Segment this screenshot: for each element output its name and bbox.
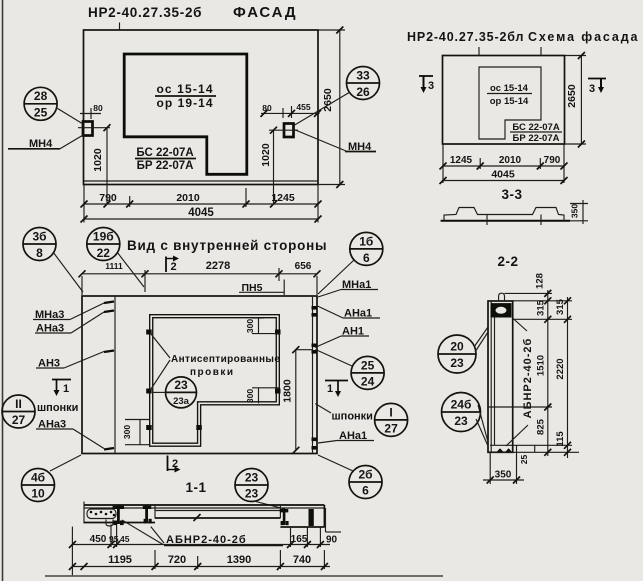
svg-text:25: 25 — [361, 359, 375, 373]
svg-text:300: 300 — [245, 319, 255, 333]
svg-text:ор 15-14: ор 15-14 — [490, 96, 529, 107]
svg-text:23: 23 — [174, 378, 188, 392]
svg-text:провки: провки — [190, 367, 235, 378]
svg-text:20: 20 — [450, 340, 464, 354]
svg-text:Антисептированные: Антисептированные — [171, 354, 280, 365]
svg-text:4045: 4045 — [491, 169, 515, 181]
svg-text:2: 2 — [172, 458, 178, 470]
svg-text:315: 315 — [555, 298, 566, 315]
svg-text:1-1: 1-1 — [185, 480, 206, 495]
svg-text:25: 25 — [34, 106, 48, 120]
svg-text:115: 115 — [555, 431, 566, 447]
svg-text:1: 1 — [63, 383, 69, 395]
svg-text:23а: 23а — [173, 396, 190, 407]
svg-text:656: 656 — [295, 261, 312, 272]
svg-text:1111: 1111 — [105, 261, 123, 271]
svg-text:26: 26 — [356, 85, 370, 99]
svg-text:2278: 2278 — [206, 260, 230, 272]
svg-text:19б: 19б — [93, 230, 114, 244]
svg-text:3: 3 — [589, 83, 595, 95]
svg-text:Вид с внутренней стороны: Вид с внутренней стороны — [127, 238, 327, 253]
svg-text:6: 6 — [363, 251, 370, 265]
svg-text:25: 25 — [519, 455, 529, 465]
svg-text:II: II — [15, 397, 22, 411]
svg-text:1800: 1800 — [282, 379, 294, 403]
svg-text:2: 2 — [171, 261, 177, 273]
svg-text:1245: 1245 — [450, 155, 473, 166]
svg-text:1020: 1020 — [260, 143, 272, 167]
svg-text:АБНР2-40-2б: АБНР2-40-2б — [522, 338, 534, 419]
svg-text:3б: 3б — [32, 230, 46, 244]
svg-text:2220: 2220 — [555, 358, 566, 379]
svg-text:шпонки: шпонки — [332, 411, 373, 423]
svg-text:2010: 2010 — [176, 192, 200, 204]
svg-text:НР2-40.27.35-2бл: НР2-40.27.35-2бл — [407, 30, 524, 44]
svg-text:1: 1 — [327, 383, 333, 395]
svg-text:450: 450 — [90, 534, 107, 545]
svg-text:1390: 1390 — [227, 554, 251, 566]
svg-text:6: 6 — [362, 484, 369, 498]
svg-text:23: 23 — [450, 356, 464, 370]
svg-text:БР 22-07А: БР 22-07А — [137, 160, 194, 172]
svg-text:740: 740 — [293, 554, 311, 566]
svg-text:24б: 24б — [451, 398, 472, 412]
svg-text:1245: 1245 — [271, 192, 295, 204]
svg-text:1195: 1195 — [108, 554, 132, 566]
svg-text:24: 24 — [361, 375, 375, 389]
svg-text:90: 90 — [326, 535, 338, 546]
svg-text:4045: 4045 — [188, 207, 214, 219]
svg-text:ос 15-14: ос 15-14 — [157, 82, 213, 96]
svg-text:2650: 2650 — [566, 84, 578, 108]
svg-text:2б: 2б — [358, 468, 372, 482]
svg-text:455: 455 — [296, 102, 310, 112]
svg-text:ФАСАД: ФАСАД — [233, 4, 296, 21]
svg-text:790: 790 — [544, 155, 561, 166]
svg-text:БС 22-07А: БС 22-07А — [512, 122, 560, 133]
svg-text:28: 28 — [34, 89, 48, 103]
svg-text:300: 300 — [122, 425, 132, 439]
svg-text:350: 350 — [495, 470, 512, 481]
svg-text:315: 315 — [536, 299, 547, 316]
svg-text:80: 80 — [262, 103, 272, 113]
svg-text:4б: 4б — [31, 471, 45, 485]
svg-text:95: 95 — [109, 534, 119, 544]
svg-text:3-3: 3-3 — [501, 187, 522, 202]
svg-text:1б: 1б — [359, 235, 373, 249]
svg-text:Схема фасада: Схема фасада — [528, 30, 639, 44]
svg-text:350: 350 — [570, 204, 580, 218]
svg-text:300: 300 — [245, 389, 255, 403]
svg-text:ос 15-14: ос 15-14 — [490, 83, 529, 94]
svg-text:165: 165 — [291, 534, 308, 545]
svg-text:23: 23 — [454, 414, 468, 428]
svg-text:ор 19-14: ор 19-14 — [157, 96, 213, 110]
svg-text:790: 790 — [99, 192, 117, 204]
svg-text:шпонки: шпонки — [37, 402, 78, 414]
svg-text:825: 825 — [536, 418, 547, 435]
svg-text:8: 8 — [36, 246, 43, 260]
svg-text:10: 10 — [31, 487, 45, 501]
svg-text:720: 720 — [168, 554, 186, 566]
svg-text:33: 33 — [356, 69, 370, 83]
svg-text:80: 80 — [93, 103, 103, 113]
svg-text:I: I — [389, 406, 392, 420]
svg-text:45: 45 — [120, 534, 130, 544]
svg-text:БР 22-07А: БР 22-07А — [513, 133, 560, 144]
svg-text:НР2-40.27.35-2б: НР2-40.27.35-2б — [88, 5, 202, 20]
svg-text:22: 22 — [97, 246, 111, 260]
svg-text:27: 27 — [384, 422, 398, 436]
svg-text:1020: 1020 — [92, 148, 104, 172]
svg-text:2010: 2010 — [499, 155, 522, 166]
svg-text:27: 27 — [12, 413, 26, 427]
svg-text:23: 23 — [245, 471, 259, 485]
svg-text:3: 3 — [428, 80, 434, 92]
svg-text:БС 22-07А: БС 22-07А — [136, 147, 193, 159]
svg-text:128: 128 — [535, 273, 546, 289]
svg-text:2-2: 2-2 — [497, 254, 518, 269]
svg-text:23: 23 — [245, 487, 259, 501]
svg-text:1510: 1510 — [536, 355, 547, 376]
